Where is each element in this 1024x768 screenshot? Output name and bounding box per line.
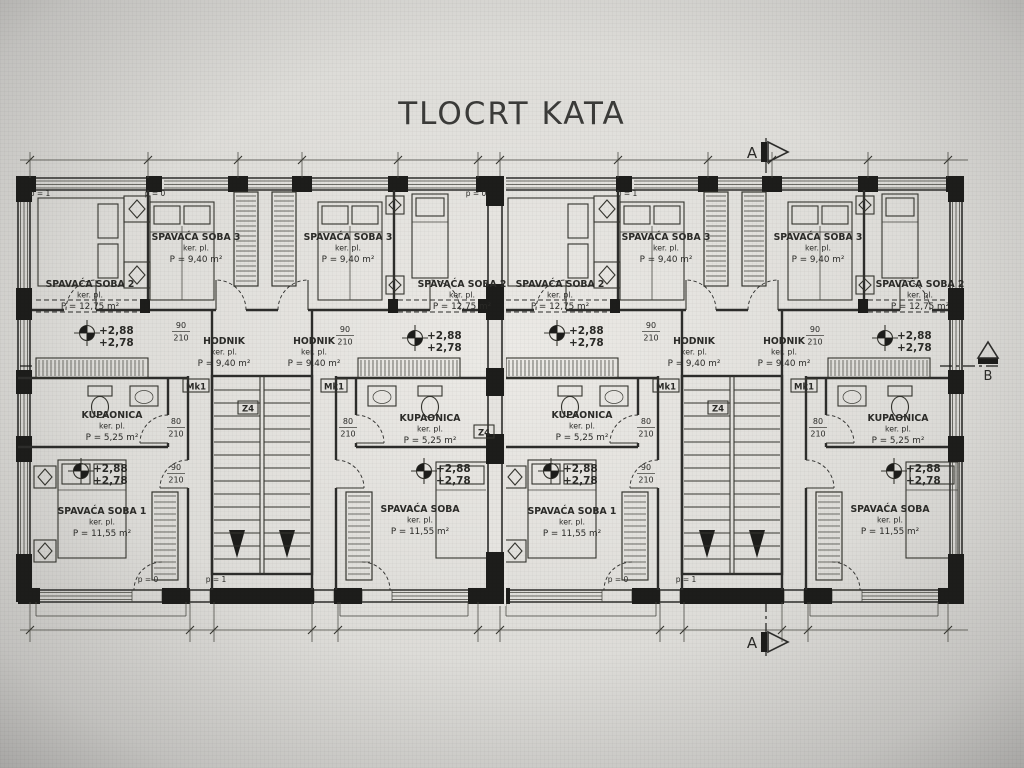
elevation-upper-value: +2,88: [93, 463, 128, 475]
room-name: KUPAONICA: [552, 410, 614, 421]
elevation-upper-value: +2,88: [436, 463, 471, 475]
bottom-dim-stubs: [500, 602, 948, 642]
stair-treads: [684, 390, 780, 559]
level-mark: p = 0: [145, 189, 166, 198]
door-height: 210: [168, 430, 183, 439]
top-windows: [506, 181, 946, 188]
room-name: SPAVAĆA SOBA 1: [58, 505, 147, 517]
section-a-top-label: A: [747, 144, 758, 162]
room-area: P = 9,40 m²: [198, 359, 251, 369]
room-name: KUPAONICA: [868, 413, 930, 424]
room-name: HODNIK: [673, 336, 716, 347]
room-sub-label: ker. pl.: [569, 422, 595, 431]
elevation-upper-value: +2,88: [897, 330, 932, 342]
door-height: 210: [337, 338, 352, 347]
elevation-marker: [411, 458, 437, 484]
wardrobe: [622, 492, 648, 580]
room-sub-label: ker. pl.: [681, 348, 707, 357]
door-width: 90: [646, 321, 656, 330]
room-sub-label: ker. pl.: [547, 291, 573, 300]
elevation-lower-value: +2,78: [563, 475, 598, 487]
room-sub-label: ker. pl.: [877, 516, 903, 525]
elevation-cross: [402, 325, 428, 351]
wardrobe-hatch: [509, 360, 613, 376]
elevation-cross: [74, 320, 100, 346]
room-sub-label: ker. pl.: [449, 291, 475, 300]
room-area: P = 11,55 m²: [73, 529, 131, 539]
photo-paper-background: TLOCRT KATA: [0, 0, 1024, 768]
room-name: SPAVAĆA SOBA 2: [876, 278, 965, 290]
room-area: P = 9,40 m²: [288, 359, 341, 369]
door-width: 90: [176, 321, 186, 330]
room-name: HODNIK: [293, 336, 336, 347]
room-area: P = 11,55 m²: [861, 527, 919, 537]
terrace-edge: [36, 602, 468, 616]
bottom-dim-stubs: [30, 602, 478, 642]
room-area: P = 9,40 m²: [640, 255, 693, 265]
elevation-cross: [544, 320, 570, 346]
room-area: P = 9,40 m²: [668, 359, 721, 369]
room-name: HODNIK: [203, 336, 246, 347]
elevation-upper-value: +2,88: [99, 325, 134, 337]
room-area: P = 12,75 m²: [891, 302, 949, 312]
elevation-upper-value: +2,88: [427, 330, 462, 342]
section-b-label: B: [984, 369, 993, 384]
room-name: SPAVAĆA SOBA 3: [304, 231, 393, 243]
elevation-marker: [74, 320, 100, 346]
elevation-upper-value: +2,88: [563, 463, 598, 475]
room-sub-label: ker. pl.: [407, 516, 433, 525]
level-mark: p = 1: [206, 575, 227, 584]
room-sub-label: ker. pl.: [301, 348, 327, 357]
room-area: P = 11,55 m²: [391, 527, 449, 537]
room-sub-label: ker. pl.: [805, 244, 831, 253]
door-width: 80: [171, 417, 181, 426]
door-width: 80: [641, 417, 651, 426]
room-area: P = 5,25 m²: [86, 433, 139, 443]
wardrobe-hatch: [154, 496, 176, 574]
door-height: 210: [638, 430, 653, 439]
room-area: P = 9,40 m²: [170, 255, 223, 265]
wardrobe: [152, 492, 178, 580]
duplex-half: [486, 152, 964, 642]
terrace-edge: [506, 602, 938, 616]
room-sub-label: ker. pl.: [771, 348, 797, 357]
room-name: SPAVAĆA SOBA 3: [622, 231, 711, 243]
room-name: SPAVAĆA SOBA 2: [46, 278, 135, 290]
room-name: SPAVAĆA SOBA 3: [152, 231, 241, 243]
party-wall: [486, 176, 506, 606]
wardrobe-hatch: [831, 360, 927, 376]
room-name: HODNIK: [763, 336, 806, 347]
mark-text: Mk1: [794, 383, 814, 393]
elevation-lower-value: +2,78: [427, 342, 462, 354]
level-mark: p = 0: [138, 575, 159, 584]
level-mark: p = 1: [30, 189, 51, 198]
stair-treads: [214, 390, 310, 559]
door-width: 90: [641, 463, 651, 472]
room-name: KUPAONICA: [82, 410, 144, 421]
door-height: 210: [643, 334, 658, 343]
room-sub-label: ker. pl.: [653, 244, 679, 253]
level-mark: p = 1: [676, 575, 697, 584]
wardrobe-hatch: [348, 496, 370, 574]
elevation-upper-value: +2,88: [906, 463, 941, 475]
room-area: P = 12,75 m²: [61, 302, 119, 312]
wardrobe: [816, 492, 842, 580]
wardrobe-hatch: [818, 496, 840, 574]
elevation-marker: [402, 325, 428, 351]
room-area: P = 9,40 m²: [758, 359, 811, 369]
room-name: SPAVAĆA SOBA: [850, 503, 930, 515]
door-height: 210: [340, 430, 355, 439]
mark-text: Z4: [478, 429, 490, 439]
room-sub-label: ker. pl.: [211, 348, 237, 357]
elevation-lower-value: +2,78: [93, 475, 128, 487]
room-area: P = 9,40 m²: [792, 255, 845, 265]
room-area: P = 5,25 m²: [404, 436, 457, 446]
elevation-marker: [544, 320, 570, 346]
elevation-upper-value: +2,88: [569, 325, 604, 337]
mark-text: Mk1: [186, 383, 206, 393]
elevation-marker: [881, 458, 907, 484]
room-name: SPAVAĆA SOBA 2: [516, 278, 605, 290]
room-name: SPAVAĆA SOBA: [380, 503, 460, 515]
door-width: 90: [171, 463, 181, 472]
elevation-cross: [411, 458, 437, 484]
elevation-marker: [872, 325, 898, 351]
wardrobe: [346, 492, 372, 580]
top-dim-stubs: [500, 152, 948, 178]
mark-text: Z4: [712, 405, 724, 415]
door-height: 210: [638, 476, 653, 485]
door-height: 210: [807, 338, 822, 347]
room-name: SPAVAĆA SOBA 2: [418, 278, 507, 290]
elevation-cross: [872, 325, 898, 351]
door-height: 210: [810, 430, 825, 439]
elevation-lower-value: +2,78: [99, 337, 134, 349]
wardrobe-hatch: [274, 196, 294, 281]
room-area: P = 9,40 m²: [322, 255, 375, 265]
room-area: P = 11,55 m²: [543, 529, 601, 539]
room-name: KUPAONICA: [400, 413, 462, 424]
door-height: 210: [168, 476, 183, 485]
section-a-bottom-label: A: [747, 634, 758, 652]
room-sub-label: ker. pl.: [907, 291, 933, 300]
room-sub-label: ker. pl.: [89, 518, 115, 527]
level-mark: p = 0: [466, 189, 487, 198]
elevation-cross: [881, 458, 907, 484]
room-sub-label: ker. pl.: [559, 518, 585, 527]
floor-plan-svg: A A B SPAVAĆA SOBA 2ker. pl.P = 12,75 m²…: [0, 0, 1024, 768]
room-sub-label: ker. pl.: [885, 425, 911, 434]
door-width: 80: [813, 417, 823, 426]
elevation-lower-value: +2,78: [436, 475, 471, 487]
staircase: [682, 376, 782, 574]
room-area: P = 5,25 m²: [872, 436, 925, 446]
elevation-lower-value: +2,78: [906, 475, 941, 487]
duplex-half: [16, 152, 494, 642]
room-sub-label: ker. pl.: [183, 244, 209, 253]
door-width: 90: [810, 325, 820, 334]
mark-text: Z4: [242, 405, 254, 415]
staircase: [212, 376, 312, 574]
room-area: P = 5,25 m²: [556, 433, 609, 443]
top-windows: [36, 181, 476, 188]
room-sub-label: ker. pl.: [99, 422, 125, 431]
elevation-lower-value: +2,78: [569, 337, 604, 349]
wardrobe-hatch: [39, 360, 143, 376]
mark-text: Mk1: [656, 383, 676, 393]
wardrobe-hatch: [361, 360, 457, 376]
room-sub-label: ker. pl.: [77, 291, 103, 300]
wardrobe-hatch: [624, 496, 646, 574]
room-sub-label: ker. pl.: [335, 244, 361, 253]
level-mark: p = 0: [608, 575, 629, 584]
elevation-lower-value: +2,78: [897, 342, 932, 354]
door-width: 80: [343, 417, 353, 426]
level-mark: p = 1: [617, 189, 638, 198]
room-sub-label: ker. pl.: [417, 425, 443, 434]
room-area: P = 12,75 m²: [531, 302, 589, 312]
top-dim-stubs: [30, 152, 478, 178]
door-height: 210: [173, 334, 188, 343]
mark-text: Mk1: [324, 383, 344, 393]
room-area: P = 12,75 m²: [433, 302, 491, 312]
room-name: SPAVAĆA SOBA 3: [774, 231, 863, 243]
door-width: 90: [340, 325, 350, 334]
wardrobe-hatch: [744, 196, 764, 281]
right-wall: [948, 176, 964, 602]
room-name: SPAVAĆA SOBA 1: [528, 505, 617, 517]
